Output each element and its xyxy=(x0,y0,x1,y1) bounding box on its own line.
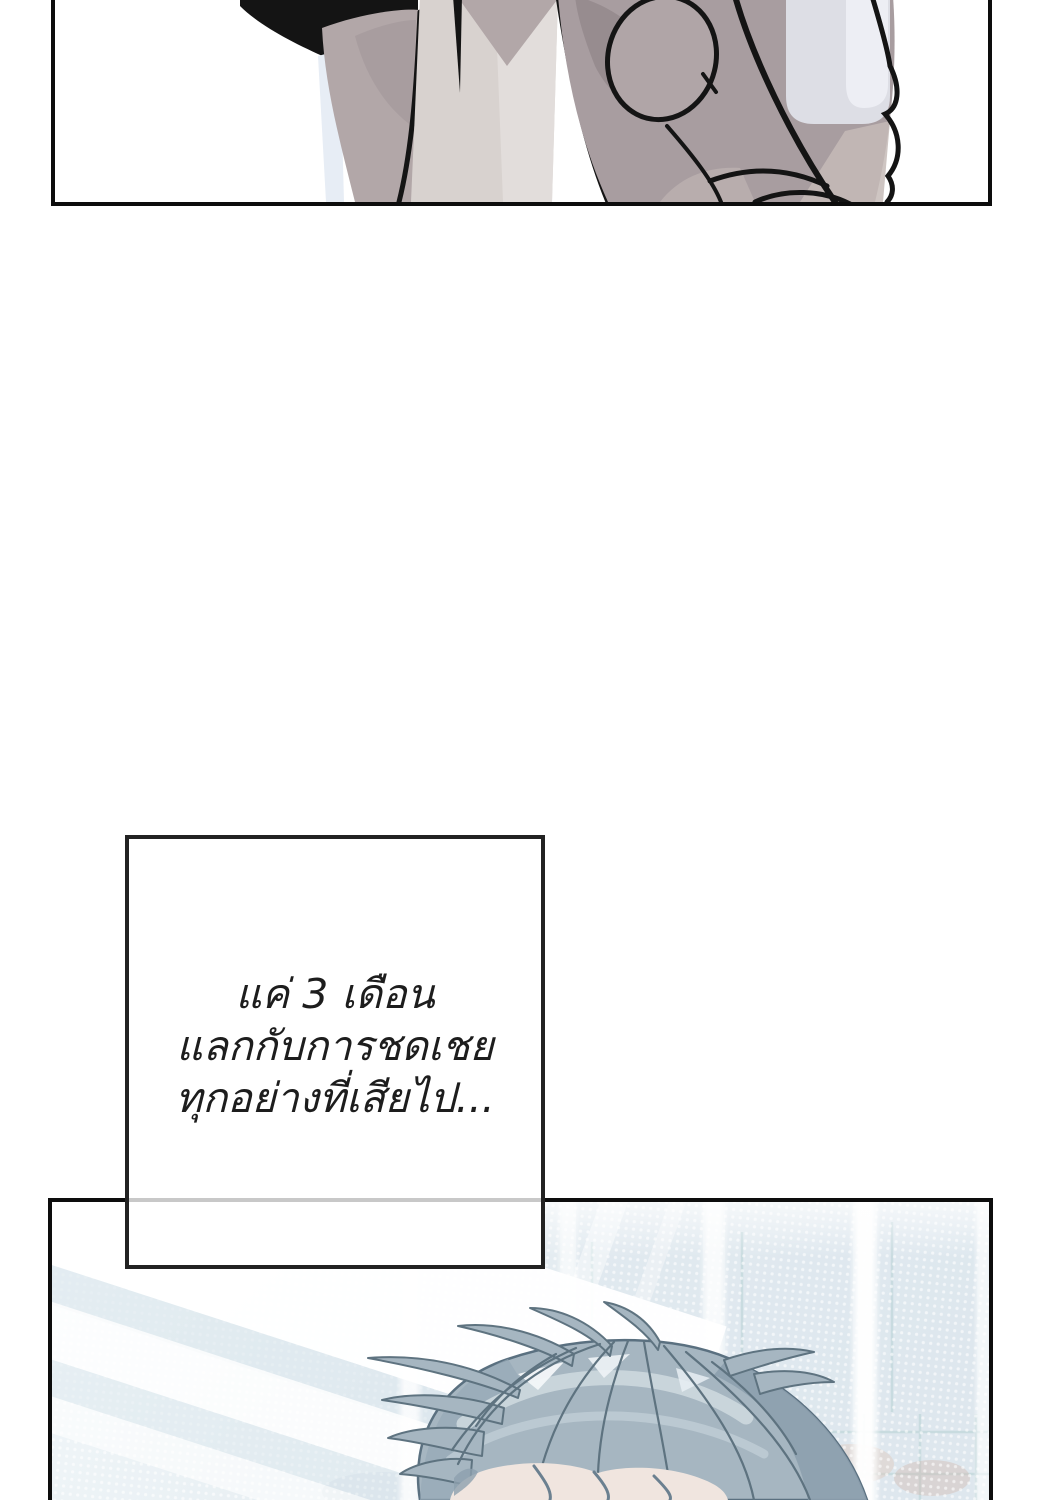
comic-panel-top xyxy=(51,0,992,206)
narration-line: ทุกอย่างที่เสียไป... xyxy=(175,1072,494,1124)
narration-line: แลกกับการชดเชย xyxy=(175,1020,494,1072)
narration-box: แค่ 3 เดือน แลกกับการชดเชย ทุกอย่างที่เส… xyxy=(125,835,545,1269)
hand-lineart-illustration xyxy=(55,0,988,202)
narration-text: แค่ 3 เดือน แลกกับการชดเชย ทุกอย่างที่เส… xyxy=(175,968,494,1124)
panel-border-overlap-line xyxy=(129,1198,541,1202)
narration-line: แค่ 3 เดือน xyxy=(175,968,494,1020)
comic-page: แค่ 3 เดือน แลกกับการชดเชย ทุกอย่างที่เส… xyxy=(0,0,1038,1500)
